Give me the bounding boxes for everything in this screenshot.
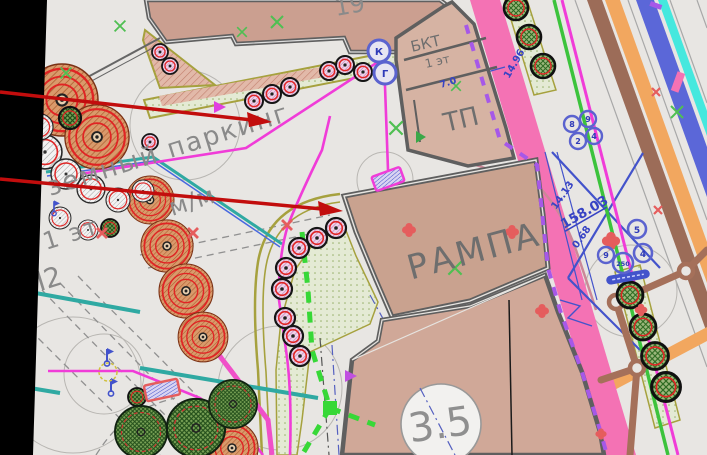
- tree: [630, 314, 656, 340]
- cad-site-plan-viewport[interactable]: К Г 8 9 2 4 5 4 250 9 7.0 14.96 14.13 15…: [0, 0, 707, 455]
- svg-text:5: 5: [634, 226, 640, 236]
- tree: [59, 107, 81, 129]
- tree: [178, 312, 228, 362]
- tree: [128, 388, 146, 406]
- svg-text:4: 4: [640, 250, 646, 260]
- tree: [517, 25, 541, 49]
- svg-text:8: 8: [569, 120, 575, 129]
- well-letter: Г: [382, 69, 389, 80]
- svg-text:2: 2: [575, 137, 581, 146]
- svg-text:250: 250: [616, 260, 630, 268]
- tree: [209, 380, 257, 428]
- tree: [642, 343, 669, 370]
- tree: [617, 282, 643, 308]
- svg-text:9: 9: [585, 115, 591, 124]
- site-plan-canvas: К Г 8 9 2 4 5 4 250 9 7.0 14.96 14.13 15…: [0, 0, 707, 455]
- tree: [652, 373, 681, 402]
- tree: [531, 54, 555, 78]
- tree: [504, 0, 528, 20]
- svg-text:4: 4: [591, 132, 597, 141]
- axis-bubble: 3.5: [401, 384, 481, 455]
- axis-bubble-number: 3.5: [405, 398, 474, 452]
- tree: [159, 264, 213, 318]
- svg-text:9: 9: [603, 251, 609, 260]
- tree: [115, 406, 167, 455]
- well-letter: К: [375, 47, 384, 58]
